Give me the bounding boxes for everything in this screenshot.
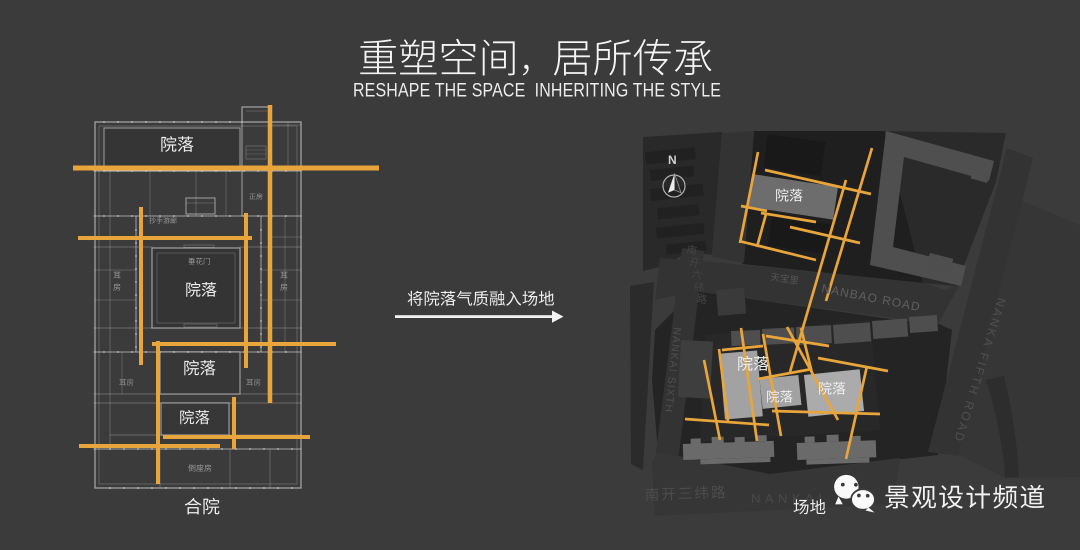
svg-text:N: N [668, 153, 677, 167]
svg-text:RESHAPE THE SPACE INHERITING: RESHAPE THE SPACE INHERITING THE STYLE [353, 79, 721, 101]
